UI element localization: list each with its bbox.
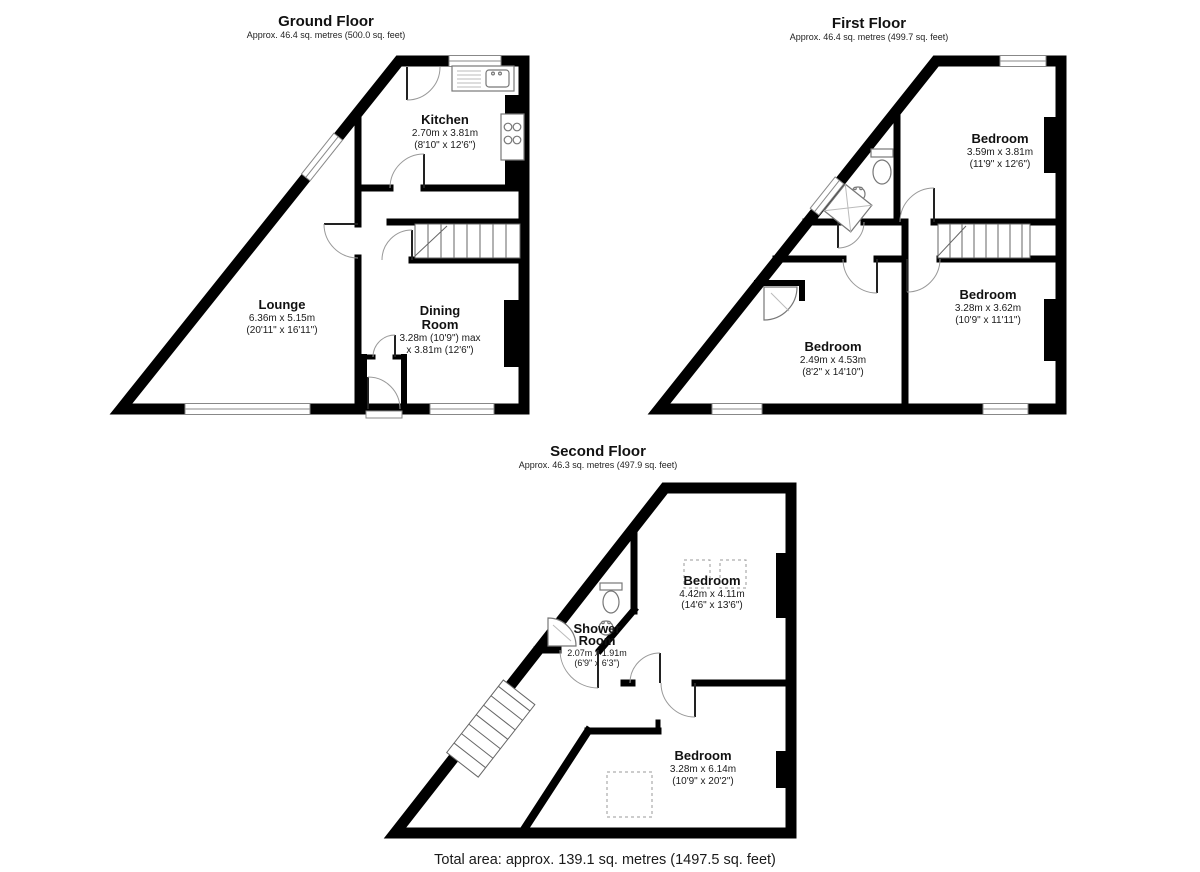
svg-text:2.07m x 1.91m: 2.07m x 1.91m xyxy=(567,648,627,658)
total-area-text: Total area: approx. 139.1 sq. metres (14… xyxy=(434,852,776,868)
room-label-kitchen: Kitchen xyxy=(421,112,469,127)
svg-text:(10'9" x 20'2"): (10'9" x 20'2") xyxy=(672,776,734,787)
floorplan-page: Ground Floor Approx. 46.4 sq. metres (50… xyxy=(0,0,1200,872)
svg-text:2.70m x 3.81m: 2.70m x 3.81m xyxy=(412,128,478,139)
svg-text:(14'6" x 13'6"): (14'6" x 13'6") xyxy=(681,600,743,611)
svg-text:3.28m x 6.14m: 3.28m x 6.14m xyxy=(670,764,736,775)
svg-text:2.49m x 4.53m: 2.49m x 4.53m xyxy=(800,355,866,366)
second-floor-plan: Second Floor Approx. 46.3 sq. metres (49… xyxy=(395,443,791,833)
svg-text:4.42m x 4.11m: 4.42m x 4.11m xyxy=(679,589,744,600)
ground-floor-subtitle: Approx. 46.4 sq. metres (500.0 sq. feet) xyxy=(247,30,406,40)
svg-text:(6'9" x 6'3"): (6'9" x 6'3") xyxy=(574,658,619,668)
svg-text:(11'9" x 12'6"): (11'9" x 12'6") xyxy=(970,159,1031,170)
svg-text:x 3.81m (12'6"): x 3.81m (12'6") xyxy=(406,345,473,356)
ground-stairs xyxy=(415,224,520,258)
svg-text:Room: Room xyxy=(422,317,459,332)
first-floor-subtitle: Approx. 46.4 sq. metres (499.7 sq. feet) xyxy=(790,32,949,42)
ground-floor-plan: Ground Floor Approx. 46.4 sq. metres (50… xyxy=(121,13,524,418)
svg-text:(20'11" x 16'11"): (20'11" x 16'11") xyxy=(246,325,317,336)
first-stairs xyxy=(938,224,1030,258)
second-floor-title: Second Floor xyxy=(550,443,646,460)
svg-text:Room: Room xyxy=(579,633,616,648)
hob-icon xyxy=(501,114,524,160)
room-label-lounge: Lounge xyxy=(259,297,306,312)
front-door-threshold xyxy=(366,411,402,418)
svg-text:(8'10" x 12'6"): (8'10" x 12'6") xyxy=(414,140,476,151)
toilet-icon xyxy=(871,149,893,184)
svg-text:(10'9" x 11'11"): (10'9" x 11'11") xyxy=(955,315,1021,326)
room-label-bedroom-5: Bedroom xyxy=(674,748,731,763)
first-floor-title: First Floor xyxy=(832,15,906,32)
floorplan-drawing: Ground Floor Approx. 46.4 sq. metres (50… xyxy=(0,0,1200,872)
svg-text:3.59m x 3.81m: 3.59m x 3.81m xyxy=(967,147,1033,158)
room-label-bedroom-2: Bedroom xyxy=(959,287,1016,302)
room-label-dining: Dining xyxy=(420,303,460,318)
ground-floor-title: Ground Floor xyxy=(278,13,374,30)
svg-text:6.36m x 5.15m: 6.36m x 5.15m xyxy=(249,313,315,324)
room-label-bedroom-4: Bedroom xyxy=(683,573,740,588)
room-label-bedroom-1: Bedroom xyxy=(971,131,1028,146)
kitchen-sink-icon xyxy=(452,66,514,91)
second-floor-subtitle: Approx. 46.3 sq. metres (497.9 sq. feet) xyxy=(519,460,678,470)
room-label-bedroom-3: Bedroom xyxy=(804,339,861,354)
svg-text:3.28m (10'9") max: 3.28m (10'9") max xyxy=(399,333,480,344)
first-floor-plan: First Floor Approx. 46.4 sq. metres (499… xyxy=(659,15,1061,415)
svg-text:3.28m x 3.62m: 3.28m x 3.62m xyxy=(955,303,1021,314)
svg-text:(8'2" x 14'10"): (8'2" x 14'10") xyxy=(802,367,864,378)
